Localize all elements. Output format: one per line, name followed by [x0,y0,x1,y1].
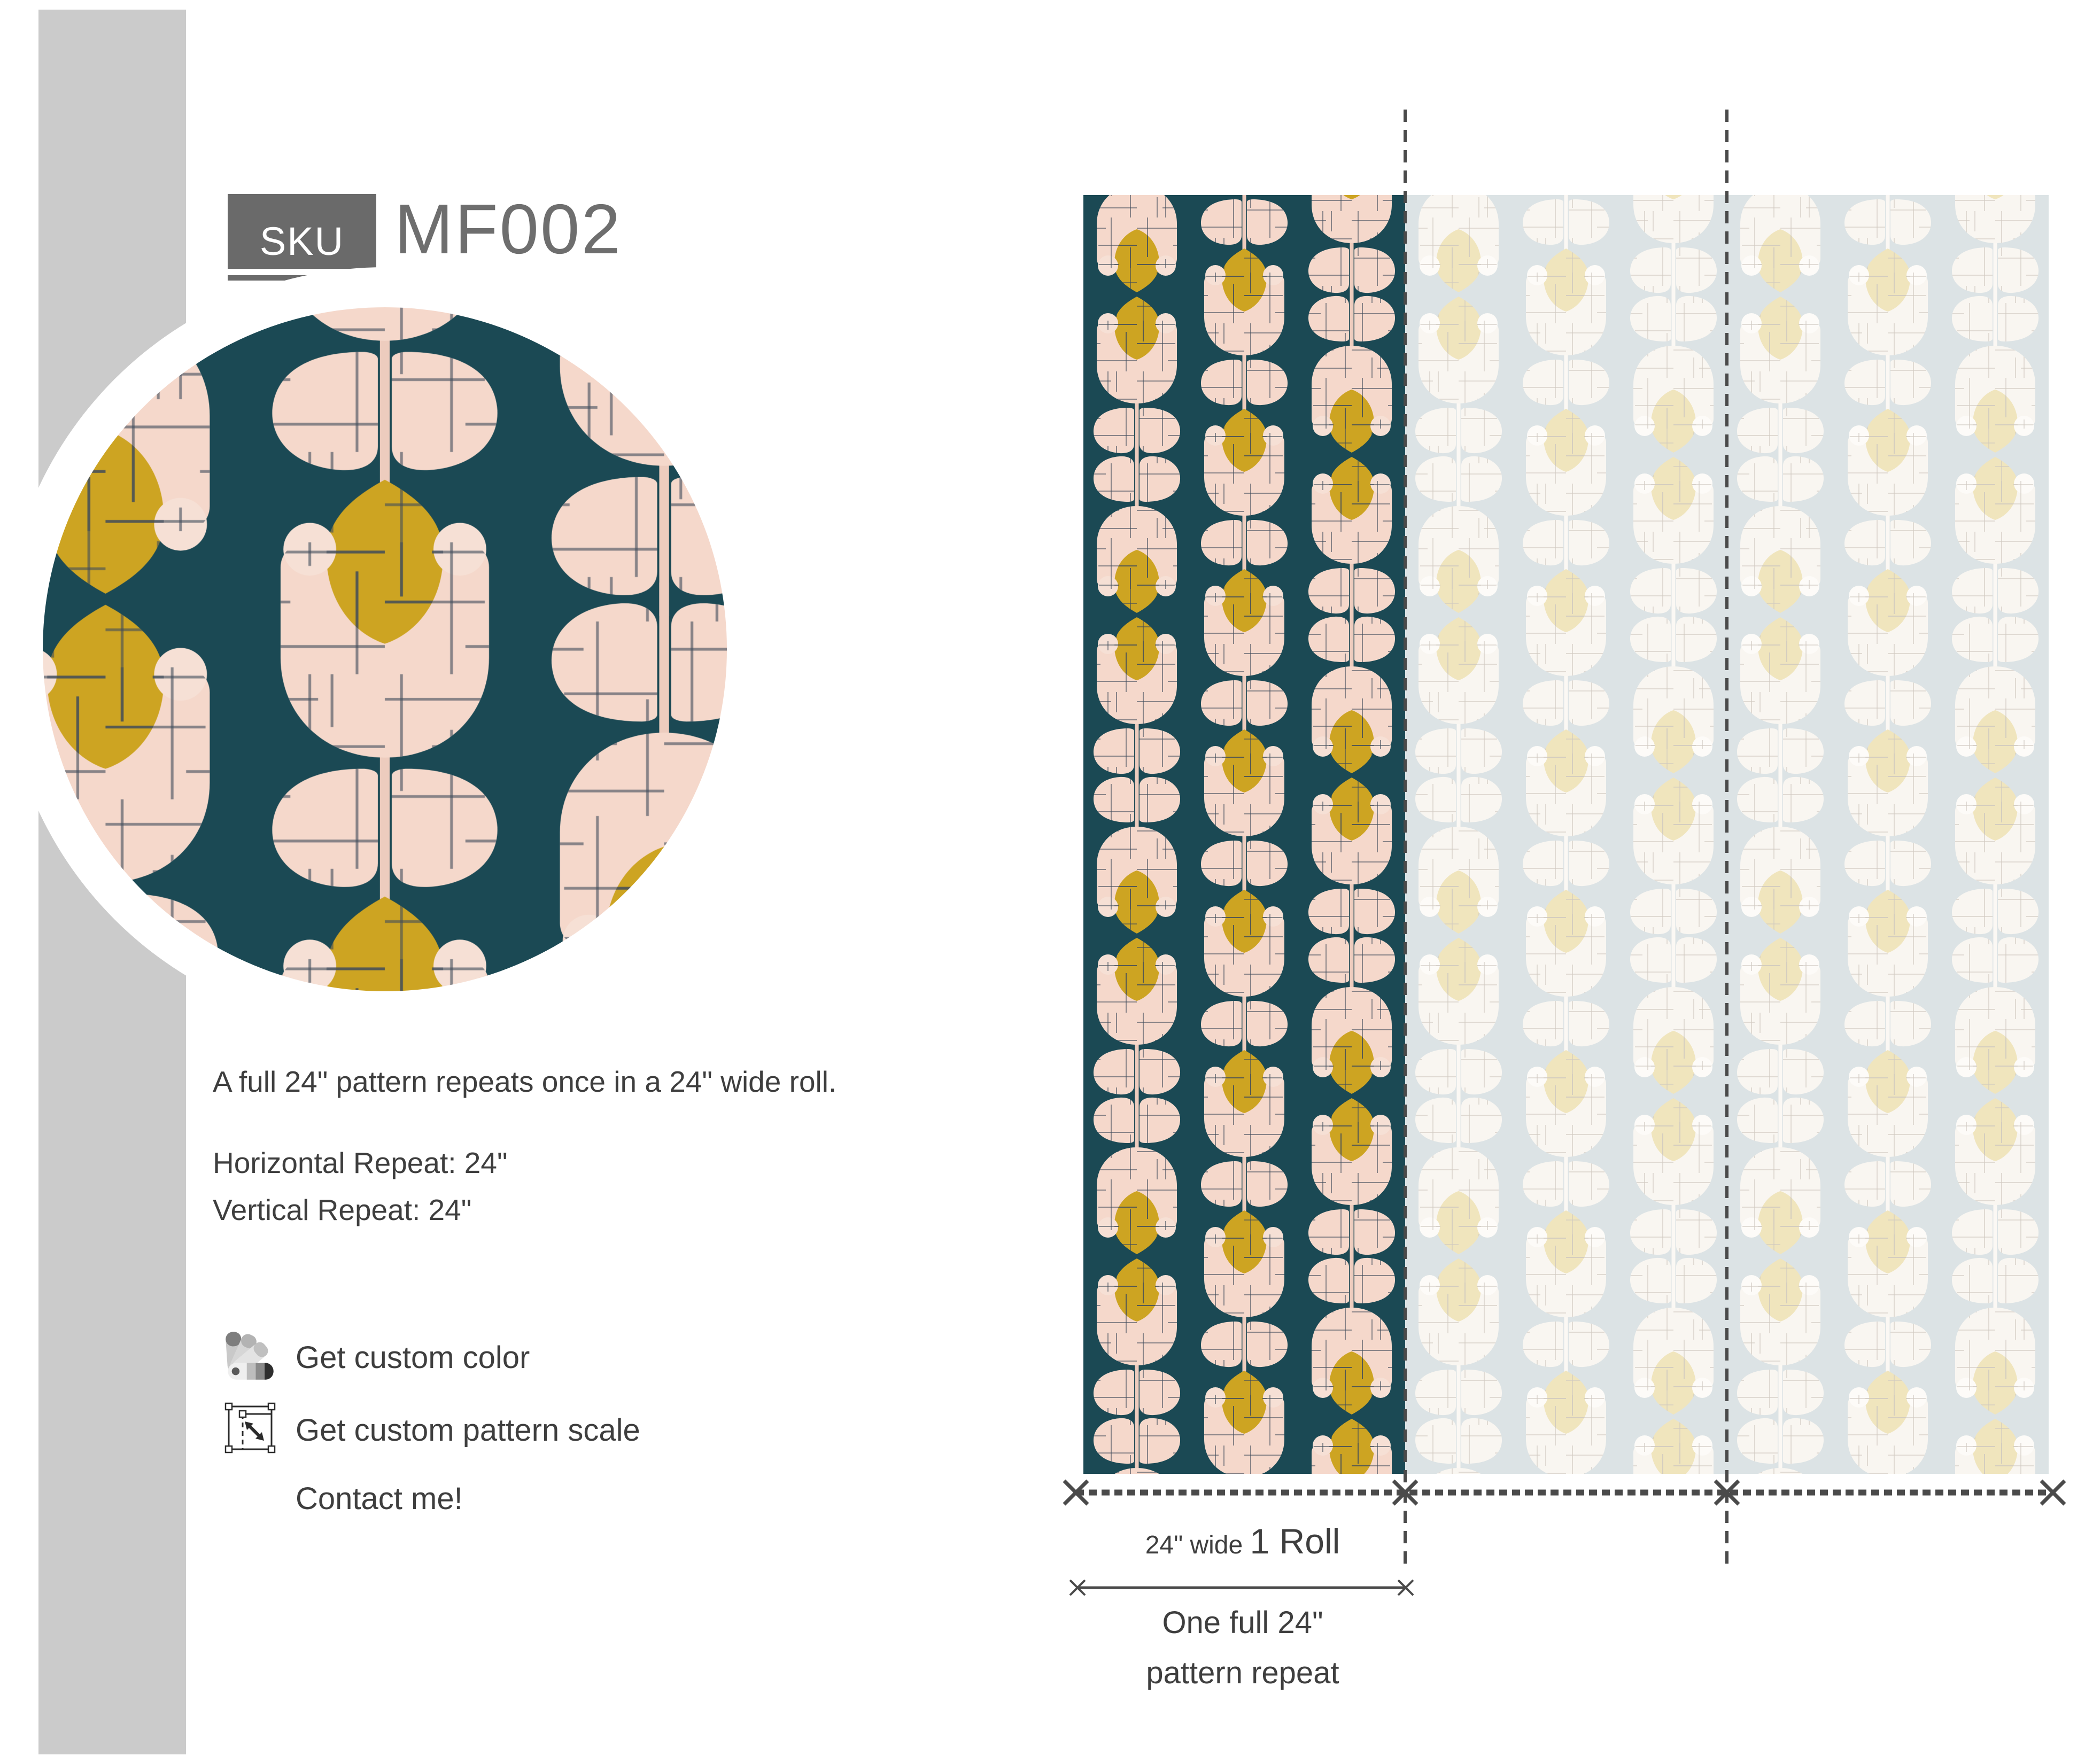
action-custom-color[interactable]: Get custom color [296,1342,530,1373]
roll-count-text: 1 Roll [1250,1521,1340,1561]
action-custom-scale[interactable]: Get custom pattern scale [296,1415,640,1446]
swatch-pattern [43,307,727,991]
pattern-repeat-caption: One full 24" pattern repeat [1069,1598,1416,1698]
pattern-swatch-circle [3,267,767,1031]
horizontal-repeat: Horizontal Repeat: 24" [213,1144,854,1183]
repeat-caption-line2: pattern repeat [1069,1648,1416,1698]
repeat-caption-line1: One full 24" [1069,1598,1416,1648]
color-fan-icon [223,1330,277,1383]
sku-badge: SKU [228,194,376,269]
pattern-description: A full 24" pattern repeats once in a 24"… [213,1062,1047,1101]
action-contact[interactable]: Contact me! [296,1483,463,1514]
sku-label: SKU [260,222,344,269]
scale-pattern-icon [224,1402,276,1454]
roll-width-caption: 24" wide 1 Roll [1069,1521,1416,1561]
measurement-annotations [1058,102,2074,1630]
roll-width-text: 24" wide [1145,1531,1250,1559]
sku-code: MF002 [394,192,622,267]
vertical-repeat: Vertical Repeat: 24" [213,1191,854,1230]
